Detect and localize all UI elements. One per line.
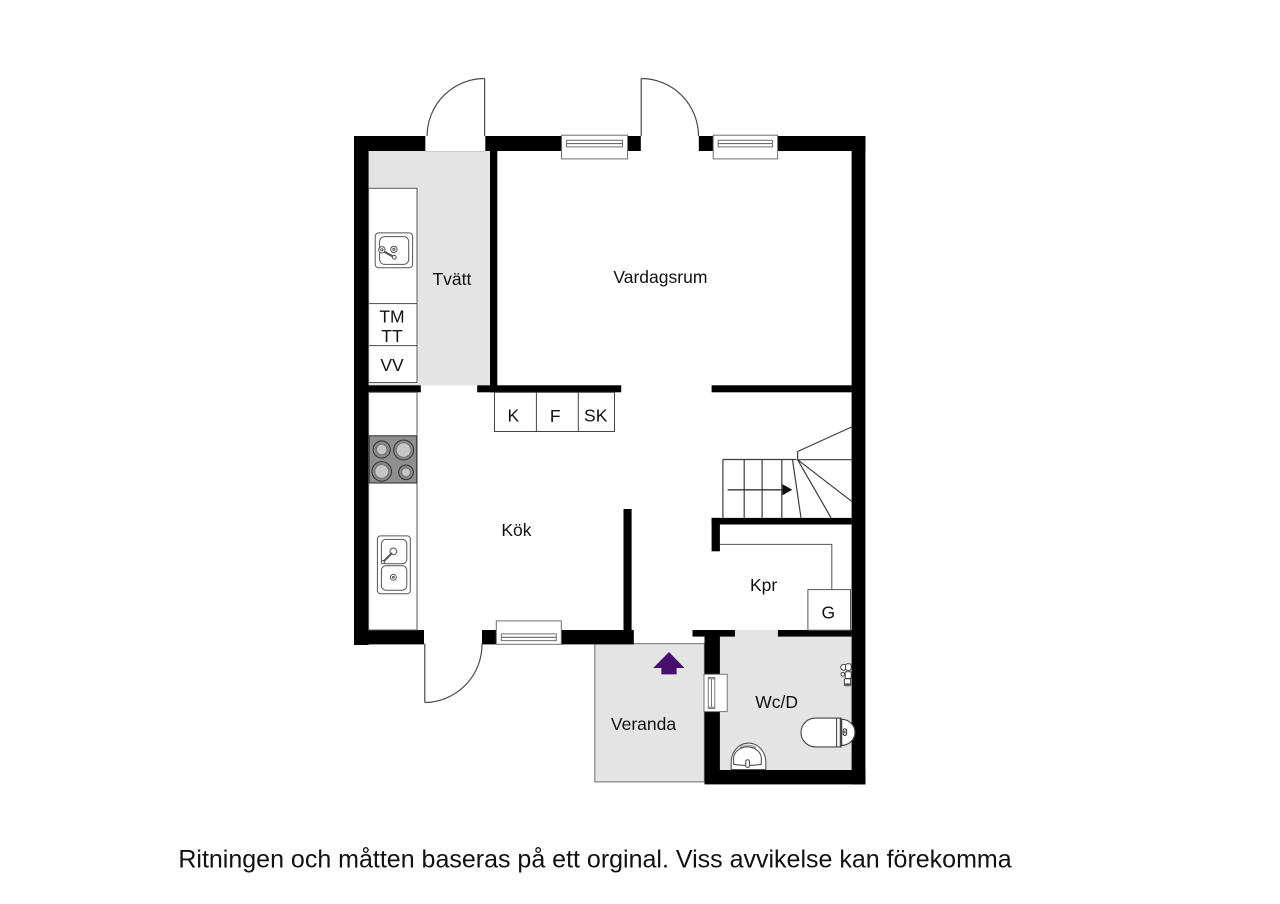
- svg-text:G: G: [821, 603, 835, 623]
- svg-text:Vardagsrum: Vardagsrum: [613, 267, 707, 287]
- svg-text:TT: TT: [381, 326, 403, 346]
- svg-text:Tvätt: Tvätt: [432, 269, 471, 289]
- svg-text:VV: VV: [380, 355, 404, 375]
- svg-text:TM: TM: [379, 307, 404, 327]
- svg-text:Wc/D: Wc/D: [755, 692, 798, 712]
- svg-text:Kök: Kök: [501, 520, 531, 540]
- svg-text:SK: SK: [584, 405, 608, 425]
- svg-text:Kpr: Kpr: [750, 575, 777, 595]
- svg-text:K: K: [507, 405, 519, 425]
- svg-text:Ritningen och måtten baseras p: Ritningen och måtten baseras på ett orgi…: [178, 846, 1011, 874]
- svg-text:Veranda: Veranda: [611, 714, 676, 734]
- svg-text:F: F: [550, 406, 561, 426]
